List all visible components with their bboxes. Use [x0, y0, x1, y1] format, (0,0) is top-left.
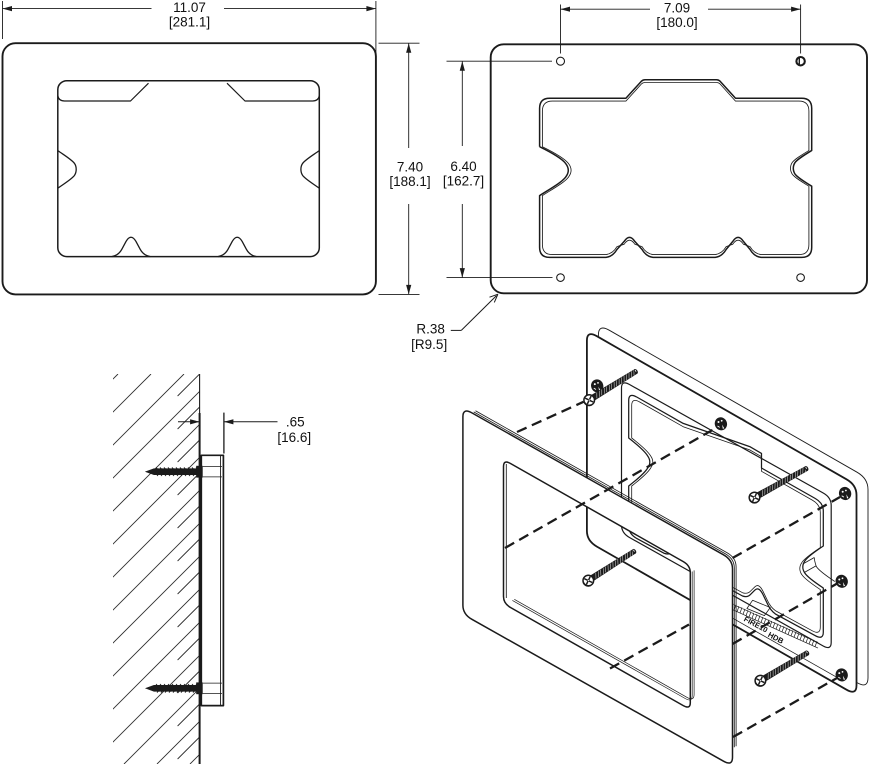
svg-text:[180.0]: [180.0] [656, 15, 697, 30]
svg-text:[162.7]: [162.7] [443, 173, 484, 188]
svg-text:[16.6]: [16.6] [277, 430, 311, 445]
svg-text:R.38: R.38 [416, 322, 445, 337]
svg-text:7.09: 7.09 [664, 1, 690, 16]
svg-text:[281.1]: [281.1] [169, 14, 210, 29]
svg-text:.65: .65 [286, 415, 305, 430]
svg-text:[188.1]: [188.1] [389, 174, 430, 189]
svg-text:11.07: 11.07 [173, 0, 206, 15]
svg-text:6.40: 6.40 [450, 159, 476, 174]
svg-text:7.40: 7.40 [397, 160, 423, 175]
svg-text:[R9.5]: [R9.5] [411, 337, 447, 352]
